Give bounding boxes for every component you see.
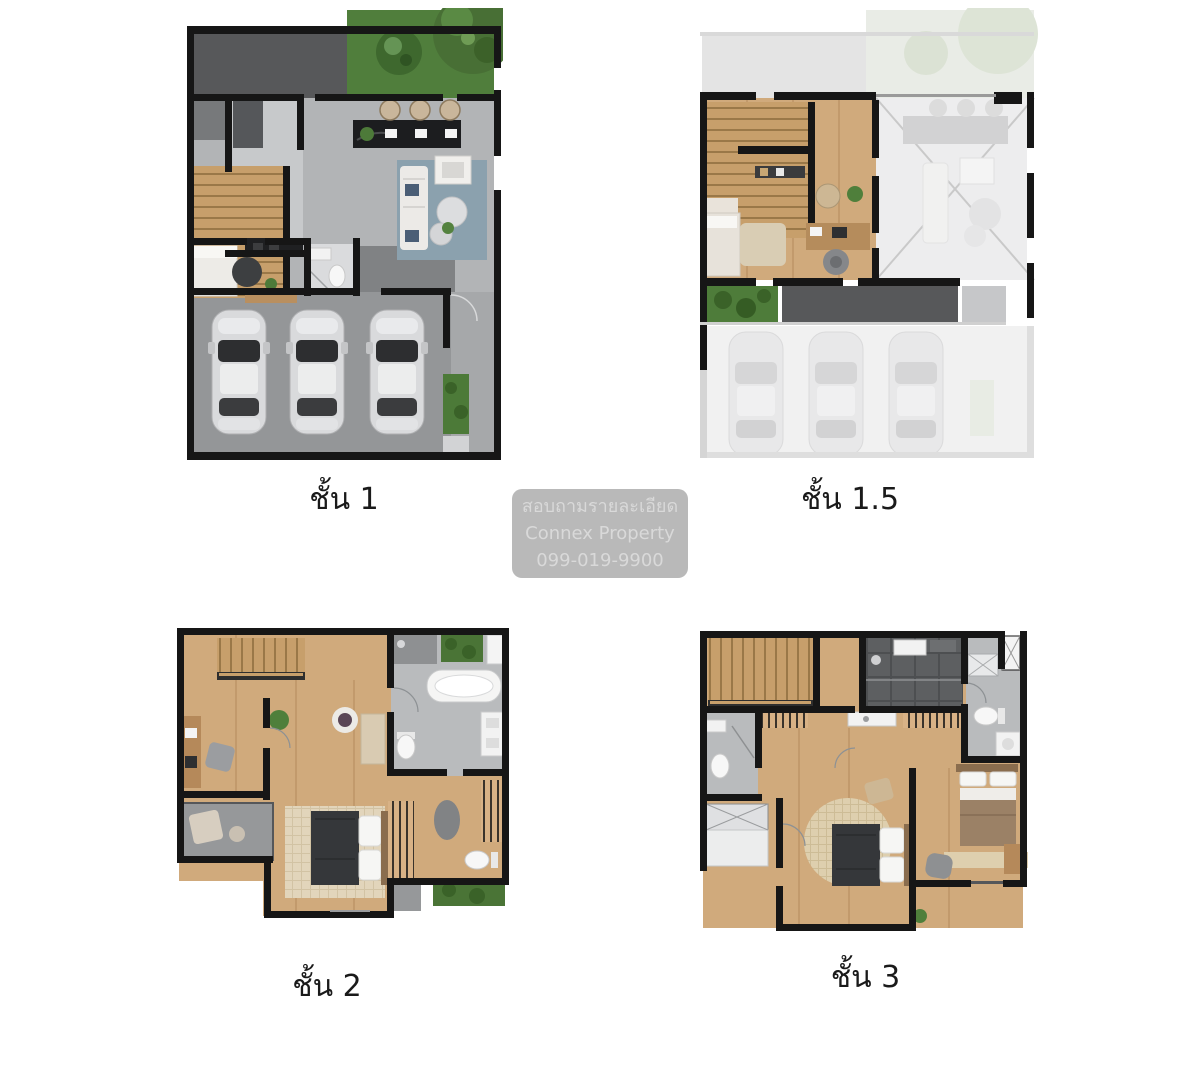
car-icon	[208, 310, 270, 434]
balcony-strip	[707, 286, 1006, 324]
floor-plan-1-5-drawing	[698, 8, 1038, 460]
living-room	[397, 156, 487, 260]
toilet-icon	[465, 851, 489, 869]
watermark-line2: Connex Property	[512, 520, 688, 547]
car-icon	[366, 310, 428, 434]
floorplan-sheet: ชั้น 1 ชั้น 1.5 ชั้น 2 ชั้น 3 สอบถามรายล…	[0, 0, 1200, 1066]
floor-plan-1-drawing	[185, 8, 503, 460]
ghost-garage	[700, 326, 1034, 458]
toilet-icon	[974, 707, 998, 725]
watermark: สอบถามรายละเอียด Connex Property 099-019…	[512, 489, 688, 578]
green-patch	[443, 374, 469, 434]
wardrobe-icon	[903, 712, 961, 728]
ghost-terrace-garden	[700, 8, 1038, 98]
hallway	[762, 712, 961, 728]
ghost-car-icon	[729, 332, 783, 456]
wardrobe-icon	[762, 712, 808, 728]
floor-plan-1	[185, 8, 503, 460]
floor-plan-3-drawing	[698, 628, 1040, 948]
ghost-car-icon	[809, 332, 863, 456]
toilet-icon	[711, 754, 729, 778]
ghost-car-icon	[889, 332, 943, 456]
floor-2-label: ชั้น 2	[168, 963, 486, 1010]
floor-1-5-label: ชั้น 1.5	[680, 476, 1020, 523]
staircase-icon	[708, 638, 820, 708]
bed-icon	[956, 764, 1018, 772]
floor-plan-2	[175, 628, 513, 950]
floor-1-label: ชั้น 1	[185, 476, 503, 523]
floor-plan-2-drawing	[175, 628, 513, 950]
void-ghost-area	[876, 98, 1034, 280]
floor-plan-3	[698, 628, 1040, 948]
floor-3-label: ชั้น 3	[698, 954, 1033, 1001]
wardrobe-icon	[388, 801, 414, 883]
watermark-line3: 099-019-9900	[512, 547, 688, 574]
bathtub-icon	[435, 675, 493, 697]
toilet-icon	[397, 735, 415, 759]
staircase-icon	[217, 638, 305, 680]
watermark-line1: สอบถามรายละเอียด	[512, 493, 688, 520]
bed-icon	[832, 824, 880, 886]
car-icon	[286, 310, 348, 434]
floor-plan-1-5	[698, 8, 1038, 460]
bed-icon	[311, 811, 359, 885]
